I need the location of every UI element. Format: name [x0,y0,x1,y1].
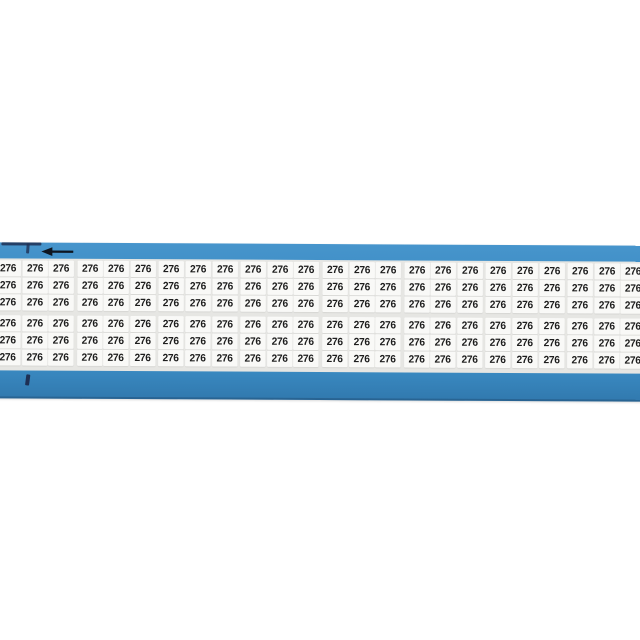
product-photo: 2762762762762762762762762762762762762762… [0,0,640,640]
wire-marker-label: 276 [457,318,482,334]
wire-marker-label: 276 [486,318,511,334]
wire-marker-label: 276 [77,333,102,349]
wire-marker-label: 276 [267,296,292,312]
wire-marker-label: 276 [294,279,319,295]
wire-marker-label: 276 [185,316,210,332]
wire-marker-label: 276 [430,335,455,351]
wire-marker-label: 276 [486,280,511,296]
wire-marker-label: 276 [594,335,619,351]
wire-marker-card: 2762762762762762762762762762762762762762… [0,242,640,401]
wire-marker-label: 276 [212,316,237,332]
wire-marker-label: 276 [323,262,348,278]
marker-row: 2762762762762762762762762762762762762762… [0,332,640,351]
wire-marker-label: 276 [567,352,592,368]
wire-marker-label: 276 [103,350,128,366]
wire-marker-label: 276 [457,263,482,279]
wire-marker-label: 276 [539,335,564,351]
wire-marker-label: 276 [240,334,265,350]
wire-marker-label: 276 [404,334,429,350]
wire-marker-label: 276 [185,295,210,311]
wire-marker-label: 276 [404,279,429,295]
wire-marker-label: 276 [186,278,211,294]
registration-tick-bottom [25,374,30,385]
wire-marker-label: 276 [267,334,292,350]
wire-marker-label: 276 [159,295,184,311]
wire-marker-label: 276 [594,280,619,296]
wire-marker-label: 276 [48,316,73,332]
wire-marker-label: 276 [240,351,265,367]
marker-row: 2762762762762762762762762762762762762762… [0,277,640,296]
wire-marker-label: 276 [185,350,210,366]
wire-marker-label: 276 [539,318,564,334]
wire-marker-label: 276 [594,352,619,368]
wire-marker-label: 276 [104,295,129,311]
wire-marker-label: 276 [0,332,20,348]
wire-marker-label: 276 [22,294,47,310]
wire-marker-label: 276 [349,317,374,333]
wire-marker-label: 276 [185,333,210,349]
wire-marker-label: 276 [22,260,47,276]
wire-marker-label: 276 [159,333,184,349]
wire-marker-label: 276 [267,351,292,367]
wire-marker-label: 276 [0,349,20,365]
wire-marker-label: 276 [375,351,400,367]
wire-marker-label: 276 [349,279,374,295]
wire-marker-label: 276 [159,278,184,294]
wire-marker-label: 276 [212,333,237,349]
marker-row: 2762762762762762762762762762762762762762… [0,349,640,368]
wire-marker-label: 276 [322,317,347,333]
wire-marker-label: 276 [594,263,619,279]
wire-marker-label: 276 [77,350,102,366]
wire-marker-label: 276 [130,350,155,366]
wire-marker-label: 276 [404,296,429,312]
wire-marker-label: 276 [486,335,511,351]
wire-marker-label: 276 [539,263,564,279]
wire-marker-label: 276 [0,260,21,276]
wire-marker-label: 276 [0,315,20,331]
wire-marker-label: 276 [594,297,619,313]
wire-marker-label: 276 [294,262,319,278]
marker-row: 2762762762762762762762762762762762762762… [0,260,640,279]
wire-marker-label: 276 [457,335,482,351]
wire-marker-label: 276 [620,353,640,369]
wire-marker-label: 276 [539,297,564,313]
wire-marker-label: 276 [0,277,20,293]
wire-marker-label: 276 [241,296,266,312]
wire-marker-label: 276 [159,261,184,277]
wire-marker-label: 276 [294,317,319,333]
wire-marker-label: 276 [48,333,73,349]
wire-marker-label: 276 [241,317,266,333]
wire-marker-label: 276 [512,352,537,368]
wire-marker-label: 276 [49,278,74,294]
wire-marker-label: 276 [375,317,400,333]
card-bottom-band [0,370,640,401]
wire-marker-label: 276 [267,262,292,278]
wire-marker-label: 276 [322,351,347,367]
wire-marker-label: 276 [539,280,564,296]
wire-marker-label: 276 [621,319,640,335]
wire-marker-label: 276 [241,262,266,278]
wire-marker-label: 276 [104,333,129,349]
card-edge-mark [1,242,41,245]
wire-marker-label: 276 [130,295,155,311]
wire-marker-label: 276 [77,261,102,277]
wire-marker-label: 276 [22,315,47,331]
wire-marker-label: 276 [457,352,482,368]
wire-marker-label: 276 [431,280,456,296]
wire-marker-label: 276 [568,263,593,279]
wire-marker-label: 276 [104,261,129,277]
wire-marker-label: 276 [567,318,592,334]
wire-marker-label: 276 [457,297,482,313]
wire-marker-label: 276 [349,262,374,278]
wire-marker-label: 276 [486,297,511,313]
wire-marker-label: 276 [49,295,74,311]
wire-marker-label: 276 [375,334,400,350]
wire-marker-label: 276 [294,351,319,367]
wire-marker-label: 276 [512,335,537,351]
wire-marker-label: 276 [376,279,401,295]
wire-marker-label: 276 [376,262,401,278]
wire-marker-label: 276 [431,318,456,334]
wire-marker-label: 276 [22,332,47,348]
wire-marker-label: 276 [322,296,347,312]
wire-marker-label: 276 [322,334,347,350]
wire-marker-label: 276 [104,278,129,294]
wire-marker-label: 276 [131,261,156,277]
wire-marker-label: 276 [568,280,593,296]
wire-marker-label: 276 [513,263,538,279]
wire-marker-label: 276 [568,297,593,313]
wire-marker-label: 276 [567,335,592,351]
wire-marker-label: 276 [77,316,102,332]
wire-marker-label: 276 [376,296,401,312]
wire-marker-label: 276 [621,264,640,280]
wire-marker-label: 276 [486,263,511,279]
wire-marker-label: 276 [430,352,455,368]
marker-grid: 2762762762762762762762762762762762762762… [0,258,640,373]
wire-marker-label: 276 [22,349,47,365]
left-arrow-icon [41,246,73,256]
wire-marker-label: 276 [539,352,564,368]
wire-marker-label: 276 [457,280,482,296]
wire-marker-label: 276 [22,277,47,293]
wire-marker-label: 276 [77,295,102,311]
wire-marker-label: 276 [349,334,374,350]
wire-marker-label: 276 [104,316,129,332]
wire-marker-label: 276 [212,261,237,277]
wire-marker-label: 276 [512,318,537,334]
wire-marker-label: 276 [212,278,237,294]
marker-row: 2762762762762762762762762762762762762762… [0,294,640,313]
wire-marker-label: 276 [159,316,184,332]
wire-marker-label: 276 [130,333,155,349]
wire-marker-label: 276 [77,278,102,294]
marker-row: 2762762762762762762762762762762762762762… [0,315,640,334]
wire-marker-label: 276 [130,278,155,294]
wire-marker-label: 276 [241,279,266,295]
wire-marker-label: 276 [48,350,73,366]
wire-marker-label: 276 [0,294,20,310]
wire-marker-label: 276 [267,279,292,295]
wire-marker-label: 276 [431,297,456,313]
wire-marker-label: 276 [404,317,429,333]
wire-marker-label: 276 [322,279,347,295]
wire-marker-label: 276 [159,350,184,366]
wire-marker-label: 276 [512,297,537,313]
wire-marker-label: 276 [486,352,511,368]
wire-marker-label: 276 [621,336,640,352]
wire-marker-label: 276 [594,318,619,334]
wire-marker-label: 276 [49,261,74,277]
wire-marker-label: 276 [186,261,211,277]
wire-marker-label: 276 [404,262,429,278]
wire-marker-label: 276 [621,298,640,314]
wire-marker-label: 276 [267,317,292,333]
wire-marker-label: 276 [404,351,429,367]
wire-marker-label: 276 [349,351,374,367]
wire-marker-label: 276 [294,296,319,312]
wire-marker-label: 276 [212,350,237,366]
wire-marker-label: 276 [431,263,456,279]
registration-tick-top [26,243,29,253]
wire-marker-label: 276 [130,316,155,332]
wire-marker-label: 276 [621,281,640,297]
wire-marker-label: 276 [294,334,319,350]
wire-marker-label: 276 [513,280,538,296]
wire-marker-label: 276 [349,296,374,312]
wire-marker-label: 276 [212,295,237,311]
